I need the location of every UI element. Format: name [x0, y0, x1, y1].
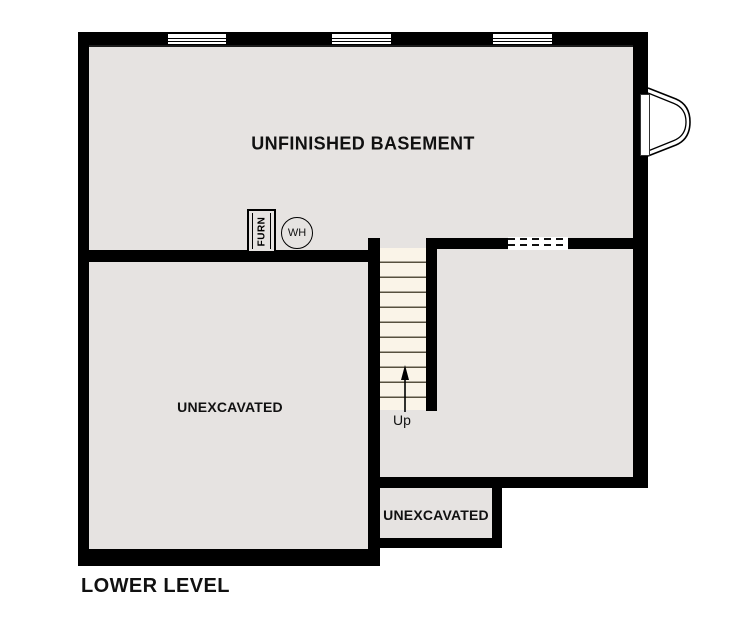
wall-left-room-bottom — [78, 549, 377, 566]
egress-window-icon — [640, 94, 650, 156]
stairs-direction-label: Up — [393, 412, 411, 428]
furnace-label: FURN — [256, 216, 267, 246]
window-icon — [167, 33, 227, 45]
wall-small-room-bottom — [368, 538, 502, 548]
window-rail — [168, 41, 226, 43]
wall-left — [78, 32, 89, 566]
doorway-dashed-line — [508, 244, 568, 246]
window-well — [646, 84, 696, 164]
page-title: LOWER LEVEL — [81, 575, 230, 598]
wall-stair-right — [426, 238, 437, 411]
window-rail — [332, 38, 391, 40]
window-icon — [492, 33, 553, 45]
floor-plan: FURN WH Up UNFINISHED BASEMENT UNEXCAVAT… — [0, 0, 730, 621]
left-unexcavated-label: UNEXCAVATED — [177, 399, 283, 415]
water-heater-label: WH — [288, 227, 306, 239]
basement-room-label: UNFINISHED BASEMENT — [251, 134, 475, 155]
window-rail — [332, 41, 391, 43]
furnace-icon: FURN — [247, 209, 276, 253]
wall-divider-left — [78, 250, 380, 262]
wall-mid-vertical — [368, 238, 380, 566]
wall-lower-horizontal — [368, 477, 648, 488]
water-heater-icon: WH — [281, 217, 313, 249]
window-rail — [493, 41, 552, 43]
window-icon — [331, 33, 392, 45]
wall-divider-right-a — [426, 238, 508, 249]
window-rail — [493, 38, 552, 40]
wall-divider-right-b — [568, 238, 640, 249]
window-rail — [168, 38, 226, 40]
up-arrow-icon — [398, 364, 412, 414]
top-wall-inner-face-line — [89, 45, 633, 47]
small-unexcavated-label: UNEXCAVATED — [383, 507, 489, 523]
doorway-dashed-line — [508, 238, 568, 240]
